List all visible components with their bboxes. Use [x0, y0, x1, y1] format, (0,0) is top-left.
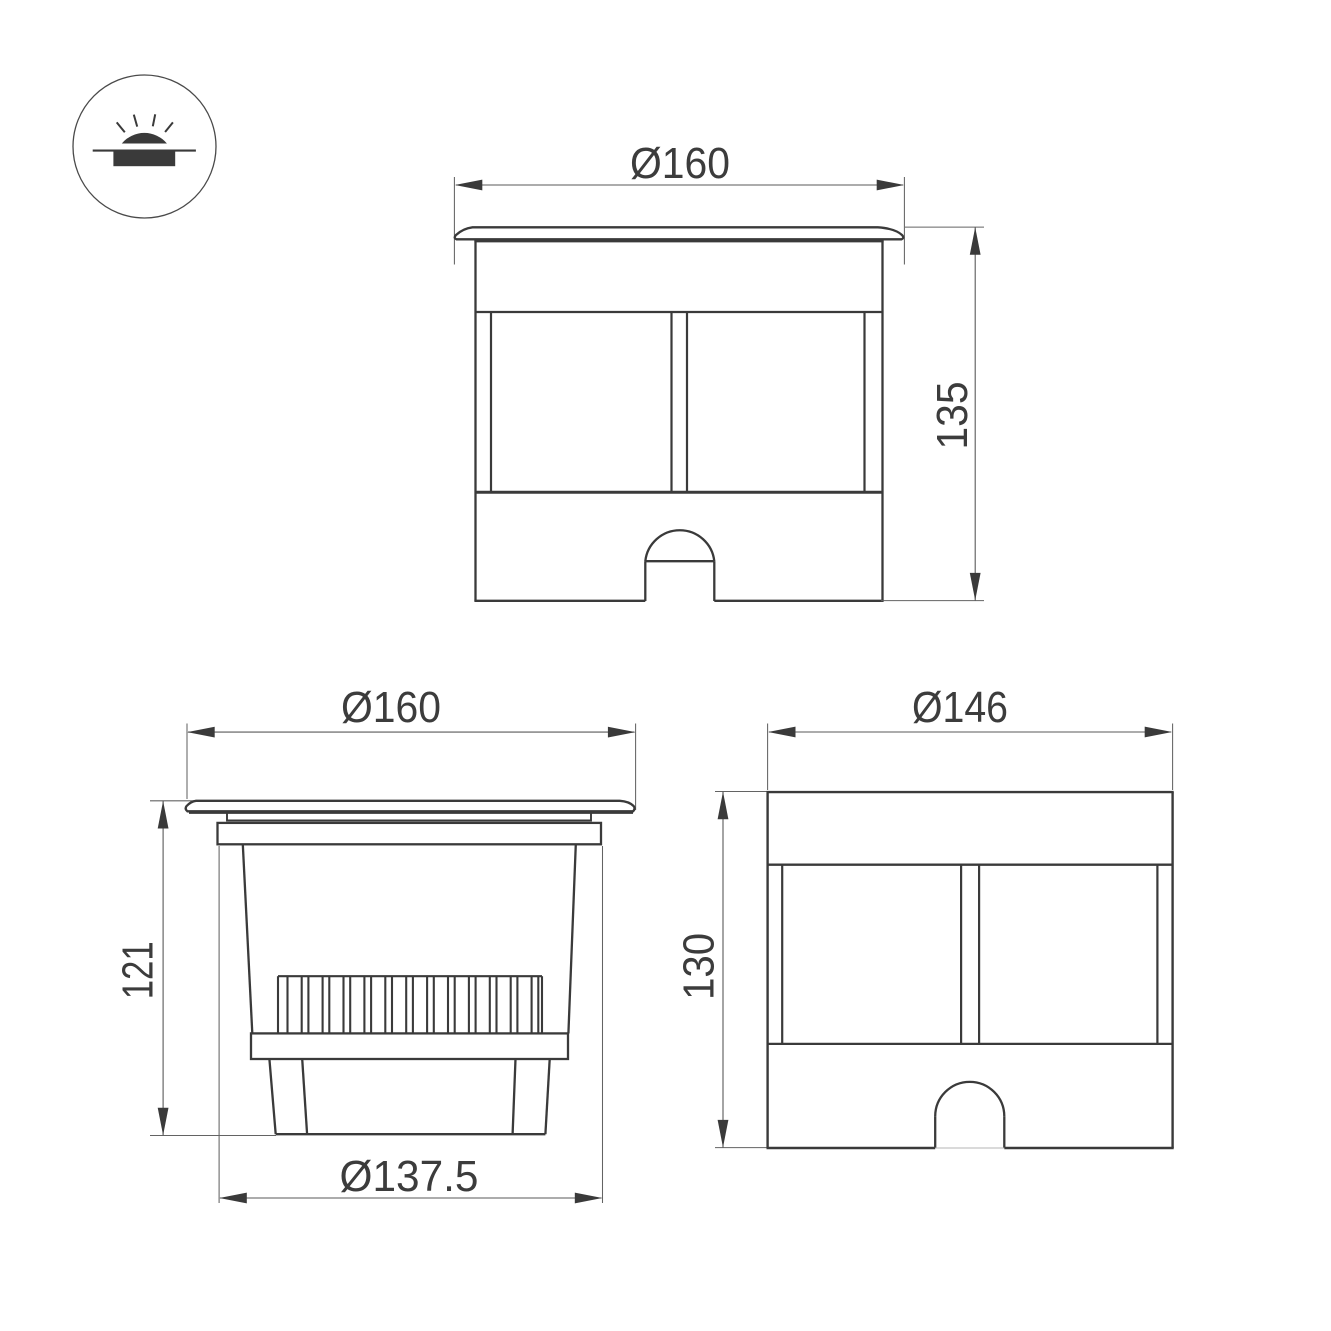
svg-text:130: 130: [675, 933, 724, 1000]
svg-text:121: 121: [114, 941, 163, 999]
svg-text:Ø146: Ø146: [912, 683, 1008, 732]
svg-text:Ø137.5: Ø137.5: [340, 1152, 479, 1201]
svg-text:Ø160: Ø160: [341, 683, 441, 732]
svg-text:135: 135: [928, 382, 977, 450]
svg-text:Ø160: Ø160: [630, 139, 730, 188]
